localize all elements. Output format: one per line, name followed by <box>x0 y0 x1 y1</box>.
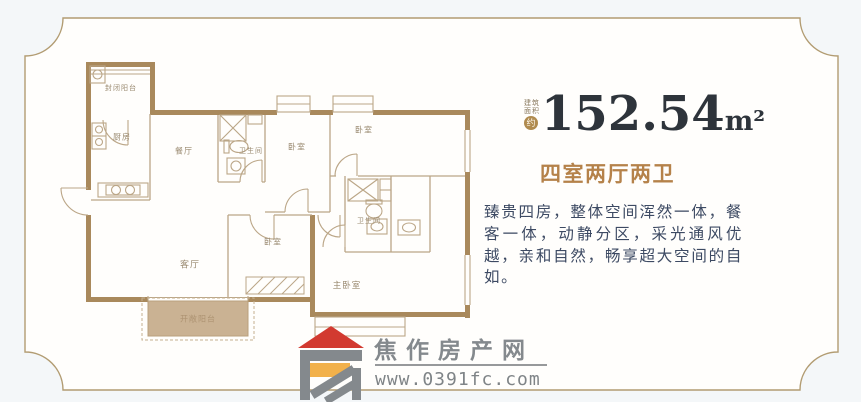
room-label: 客厅 <box>180 258 200 271</box>
area-unit: m² <box>725 106 765 137</box>
logo-house-icon <box>296 324 366 402</box>
closet-hatch <box>246 277 304 294</box>
room-label: 卫生间 <box>239 146 263 156</box>
room-label: 厨房 <box>113 132 131 143</box>
logo-site-name: 焦作房产网 <box>374 331 558 365</box>
area-block: 建筑 面积 约 152.54m² <box>484 92 752 144</box>
area-mini-label: 建筑 面积 <box>522 100 542 115</box>
windows <box>91 70 471 336</box>
partition-walls <box>91 114 465 297</box>
info-panel: 建筑 面积 约 152.54m² 四室两厅两卫 臻贵四房，整体空间浑然一体，餐客… <box>484 92 752 289</box>
logo-divider <box>375 364 547 366</box>
room-label: 餐厅 <box>175 146 193 157</box>
room-label: 主卧室 <box>333 279 362 291</box>
area-approx-badge: 约 <box>524 116 538 130</box>
area-value: 152.54m² <box>541 86 765 142</box>
description-text: 臻贵四房，整体空间浑然一体，餐客一体，动静分区，采光通风优越，亲和自然，畅享超大… <box>484 202 743 289</box>
site-logo: 焦作房产网 www.0391fc.com <box>296 322 576 402</box>
room-label: 封闭阳台 <box>105 83 137 93</box>
room-label: 卧室 <box>288 142 306 153</box>
room-label: 卧室 <box>264 237 282 248</box>
room-label: 卧室 <box>355 125 373 136</box>
layout-title: 四室两厅两卫 <box>540 158 752 188</box>
room-label: 卫生间 <box>357 216 381 226</box>
logo-site-url: www.0391fc.com <box>375 369 541 390</box>
room-label: 开敞阳台 <box>180 314 216 325</box>
